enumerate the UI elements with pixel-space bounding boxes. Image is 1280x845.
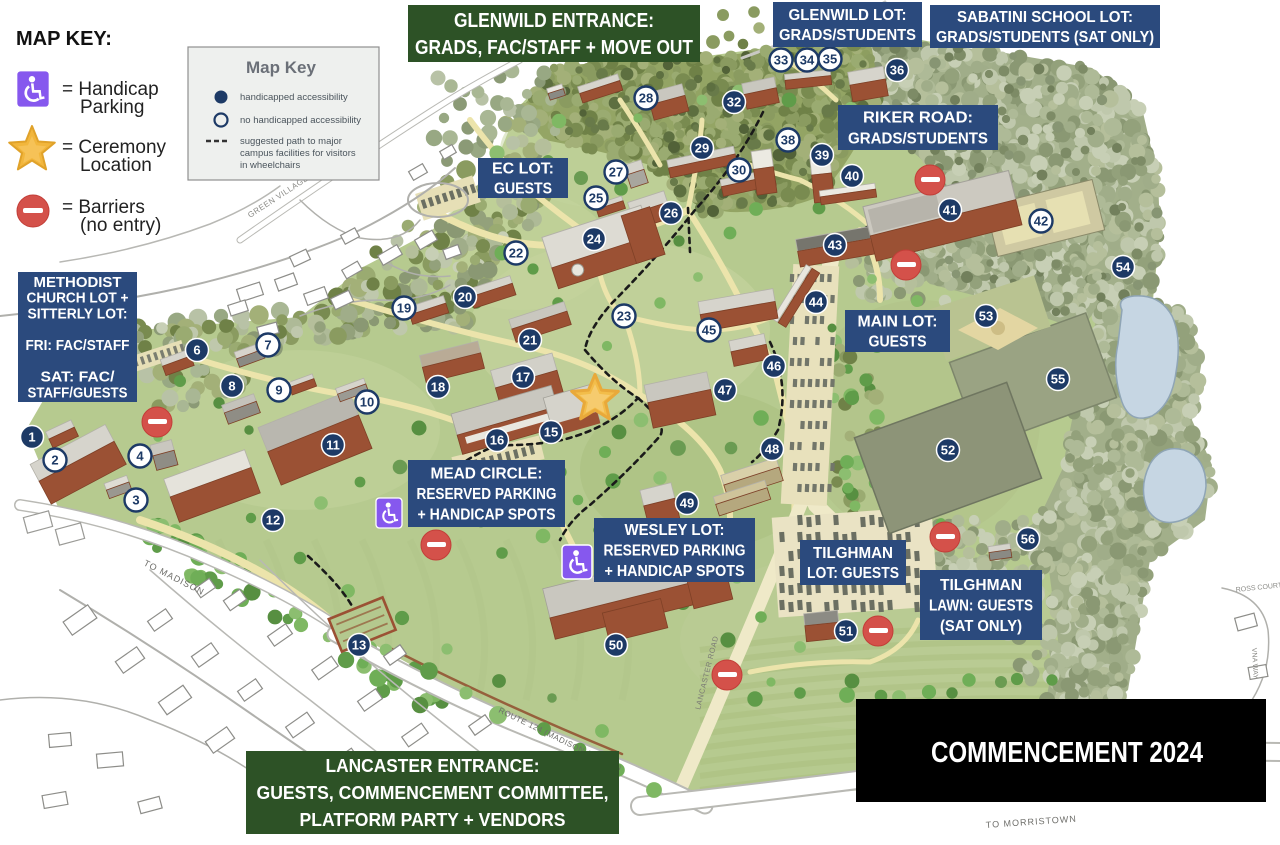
svg-text:suggested path to major: suggested path to major <box>240 136 342 147</box>
svg-text:13: 13 <box>352 638 366 653</box>
svg-text:52: 52 <box>941 443 955 458</box>
svg-text:STAFF/GUESTS: STAFF/GUESTS <box>28 385 128 401</box>
svg-text:2: 2 <box>51 453 58 468</box>
svg-text:GLENWILD ENTRANCE:: GLENWILD ENTRANCE: <box>454 10 654 32</box>
svg-text:28: 28 <box>639 91 653 106</box>
svg-text:GRADS/STUDENTS: GRADS/STUDENTS <box>779 27 916 44</box>
svg-text:GRADS, FAC/STAFF + MOVE OUT: GRADS, FAC/STAFF + MOVE OUT <box>415 37 693 59</box>
svg-text:24: 24 <box>587 232 602 247</box>
svg-text:in wheelchairs: in wheelchairs <box>240 160 300 171</box>
svg-text:+ HANDICAP SPOTS: + HANDICAP SPOTS <box>605 563 745 580</box>
svg-text:GUESTS: GUESTS <box>869 333 927 350</box>
svg-text:36: 36 <box>890 63 904 78</box>
svg-text:MAIN LOT:: MAIN LOT: <box>858 313 938 330</box>
svg-text:(no entry): (no entry) <box>80 215 161 236</box>
svg-text:SITTERLY LOT:: SITTERLY LOT: <box>28 306 128 322</box>
svg-text:RESERVED PARKING: RESERVED PARKING <box>417 486 557 503</box>
svg-text:43: 43 <box>828 238 842 253</box>
svg-text:TILGHMAN: TILGHMAN <box>813 545 893 562</box>
svg-text:47: 47 <box>718 383 732 398</box>
svg-text:22: 22 <box>509 246 523 261</box>
svg-text:Map Key: Map Key <box>246 58 316 77</box>
svg-text:45: 45 <box>702 323 716 338</box>
svg-text:9: 9 <box>275 383 282 398</box>
svg-text:+ HANDICAP SPOTS: + HANDICAP SPOTS <box>418 506 556 523</box>
svg-text:33: 33 <box>774 53 788 68</box>
svg-text:49: 49 <box>680 496 694 511</box>
svg-text:WESLEY LOT:: WESLEY LOT: <box>625 522 725 539</box>
svg-text:30: 30 <box>732 163 746 178</box>
svg-text:RIKER ROAD:: RIKER ROAD: <box>863 110 973 127</box>
svg-text:MAP KEY:: MAP KEY: <box>16 28 112 50</box>
svg-text:(SAT ONLY): (SAT ONLY) <box>940 618 1022 635</box>
svg-text:FRI: FAC/STAFF: FRI: FAC/STAFF <box>26 338 130 354</box>
svg-text:38: 38 <box>781 133 795 148</box>
svg-text:46: 46 <box>767 359 781 374</box>
svg-text:25: 25 <box>589 191 603 206</box>
svg-text:EC LOT:: EC LOT: <box>492 160 554 177</box>
svg-text:10: 10 <box>360 395 374 410</box>
svg-text:41: 41 <box>943 203 957 218</box>
svg-text:48: 48 <box>765 442 779 457</box>
svg-text:35: 35 <box>823 52 837 67</box>
svg-text:Parking: Parking <box>80 97 144 118</box>
svg-text:39: 39 <box>815 148 829 163</box>
svg-text:34: 34 <box>800 53 815 68</box>
svg-text:RESERVED PARKING: RESERVED PARKING <box>604 542 746 559</box>
svg-text:METHODIST: METHODIST <box>34 275 122 291</box>
svg-text:26: 26 <box>664 206 678 221</box>
svg-text:COMMENCEMENT 2024: COMMENCEMENT 2024 <box>931 737 1203 769</box>
svg-text:PLATFORM PARTY + VENDORS: PLATFORM PARTY + VENDORS <box>300 810 566 830</box>
svg-text:CHURCH LOT +: CHURCH LOT + <box>27 291 129 307</box>
svg-text:56: 56 <box>1021 532 1035 547</box>
svg-text:21: 21 <box>523 333 537 348</box>
svg-text:Location: Location <box>80 155 152 176</box>
svg-text:LOT: GUESTS: LOT: GUESTS <box>807 565 899 582</box>
svg-text:8: 8 <box>228 379 235 394</box>
svg-text:GUESTS: GUESTS <box>494 180 552 197</box>
svg-text:54: 54 <box>1116 260 1131 275</box>
svg-text:SAT: FAC/: SAT: FAC/ <box>41 370 115 386</box>
svg-text:18: 18 <box>431 380 445 395</box>
svg-text:27: 27 <box>609 165 623 180</box>
svg-text:50: 50 <box>609 638 623 653</box>
svg-text:40: 40 <box>845 169 859 184</box>
svg-text:6: 6 <box>193 343 200 358</box>
svg-text:17: 17 <box>516 370 530 385</box>
svg-text:53: 53 <box>979 309 993 324</box>
svg-text:44: 44 <box>809 295 824 310</box>
svg-text:19: 19 <box>397 301 411 316</box>
svg-text:no handicapped accessibility: no handicapped accessibility <box>240 115 361 126</box>
svg-text:3: 3 <box>132 493 139 508</box>
svg-text:42: 42 <box>1034 214 1048 229</box>
svg-text:20: 20 <box>458 290 472 305</box>
svg-text:TILGHMAN: TILGHMAN <box>940 577 1022 594</box>
svg-text:LANCASTER ENTRANCE:: LANCASTER ENTRANCE: <box>326 756 540 776</box>
svg-text:29: 29 <box>695 141 709 156</box>
svg-text:51: 51 <box>839 624 853 639</box>
svg-text:1: 1 <box>28 430 35 445</box>
svg-text:MEAD CIRCLE:: MEAD CIRCLE: <box>431 465 543 482</box>
svg-text:4: 4 <box>136 449 144 464</box>
svg-text:16: 16 <box>490 433 504 448</box>
svg-text:handicapped accessibility: handicapped accessibility <box>240 92 348 103</box>
svg-text:GRADS/STUDENTS: GRADS/STUDENTS <box>848 131 988 148</box>
svg-text:12: 12 <box>266 513 280 528</box>
svg-text:GLENWILD LOT:: GLENWILD LOT: <box>789 7 907 24</box>
svg-text:7: 7 <box>264 338 271 353</box>
svg-text:campus facilities for visitors: campus facilities for visitors <box>240 148 356 159</box>
svg-text:SABATINI SCHOOL LOT:: SABATINI SCHOOL LOT: <box>957 9 1133 26</box>
svg-text:LAWN: GUESTS: LAWN: GUESTS <box>929 597 1033 614</box>
svg-text:15: 15 <box>544 425 558 440</box>
svg-text:32: 32 <box>727 95 741 110</box>
svg-text:23: 23 <box>617 309 631 324</box>
svg-text:55: 55 <box>1051 372 1065 387</box>
svg-text:GUESTS, COMMENCEMENT COMMITTEE: GUESTS, COMMENCEMENT COMMITTEE, <box>257 783 609 803</box>
svg-text:11: 11 <box>326 438 340 453</box>
svg-text:GRADS/STUDENTS (SAT ONLY): GRADS/STUDENTS (SAT ONLY) <box>936 29 1154 46</box>
